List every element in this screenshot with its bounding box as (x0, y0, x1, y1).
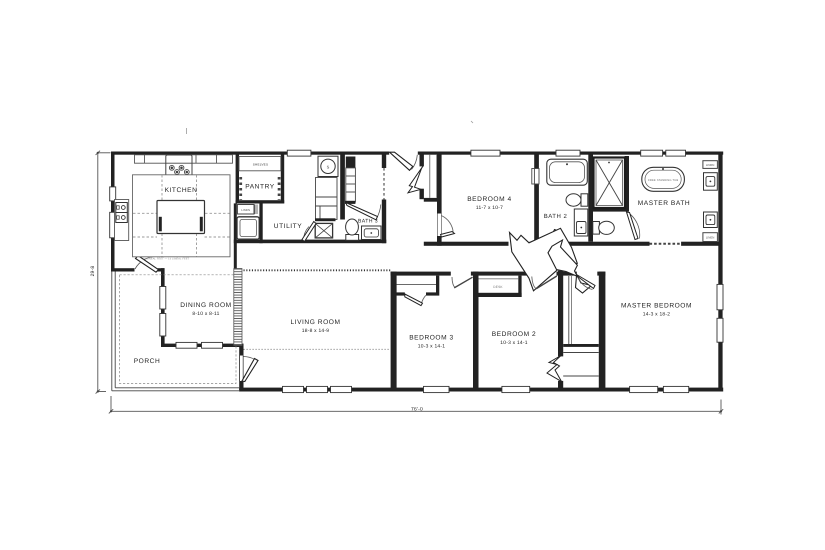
svg-text:MASTER BEDROOM: MASTER BEDROOM (621, 303, 692, 310)
svg-text:10-3 x 14-1: 10-3 x 14-1 (418, 344, 446, 350)
svg-text:FREE STANDING TUB: FREE STANDING TUB (648, 179, 678, 182)
svg-text:KITCHEN: KITCHEN (165, 187, 198, 194)
svg-text:PANTRY: PANTRY (245, 184, 274, 191)
svg-text:10-3 x 14-1: 10-3 x 14-1 (500, 340, 528, 346)
svg-text:14-3 x 18-2: 14-3 x 18-2 (643, 312, 671, 318)
svg-text:DESK: DESK (493, 285, 503, 289)
svg-text:8-10 x 8-11: 8-10 x 8-11 (192, 311, 219, 317)
svg-text:PORCH: PORCH (134, 358, 161, 365)
svg-text:76'-0: 76'-0 (411, 407, 423, 413)
svg-text:18-8 x 14-9: 18-8 x 14-9 (302, 328, 330, 334)
svg-text:BEDROOM 4: BEDROOM 4 (467, 196, 512, 203)
svg-text:LINEN: LINEN (241, 208, 250, 212)
svg-text:11-7 x 10-7: 11-7 x 10-7 (476, 205, 503, 211)
svg-text:BEDROOM 2: BEDROOM 2 (492, 331, 537, 338)
svg-text:LIVING ROOM: LIVING ROOM (290, 319, 340, 326)
svg-text:BATH 2: BATH 2 (544, 213, 568, 220)
svg-text:SHELVES: SHELVES (253, 163, 268, 167)
svg-text:S: S (327, 164, 330, 169)
svg-text:DINING ROOM: DINING ROOM (180, 302, 231, 309)
svg-text:LINEN: LINEN (706, 235, 715, 239)
svg-text:BATH 3: BATH 3 (358, 219, 378, 225)
svg-text:10 LINEAL FEET — 14 LINEAL FEE: 10 LINEAL FEET — 14 LINEAL FEET (143, 258, 190, 261)
svg-text:LINEN: LINEN (706, 163, 715, 167)
svg-text:29-8: 29-8 (90, 266, 96, 277)
svg-text:UTILITY: UTILITY (274, 223, 302, 230)
svg-text:MASTER BATH: MASTER BATH (638, 200, 690, 207)
svg-text:BEDROOM 3: BEDROOM 3 (409, 335, 454, 342)
